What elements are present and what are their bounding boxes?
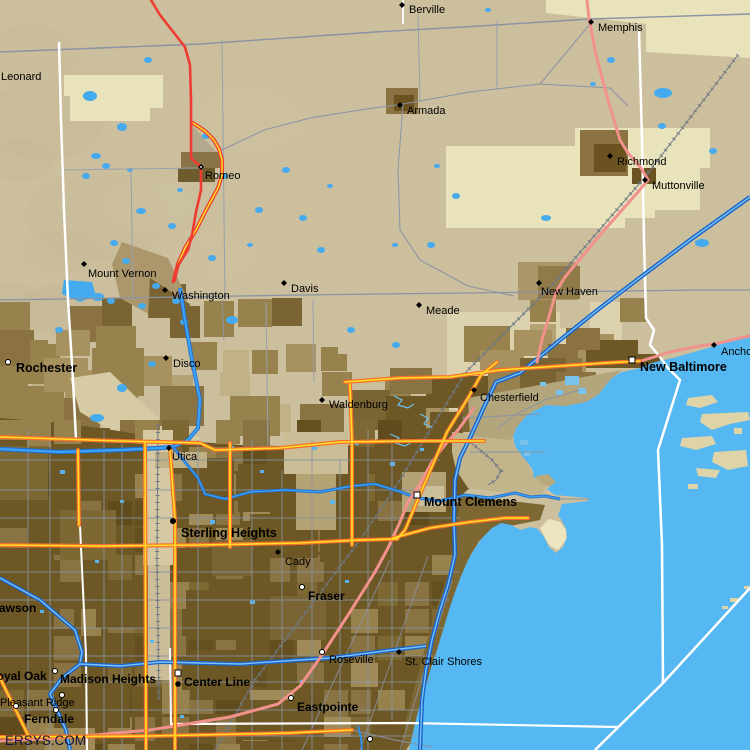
svg-text:Utica: Utica <box>172 451 198 463</box>
svg-text:Sterling Heights: Sterling Heights <box>181 526 277 540</box>
svg-text:Romeo: Romeo <box>205 170 240 182</box>
svg-text:Richmond: Richmond <box>617 156 667 168</box>
svg-text:Davis: Davis <box>291 283 319 295</box>
svg-text:Cady: Cady <box>285 556 311 568</box>
svg-text:Leonard: Leonard <box>1 71 41 83</box>
svg-text:Roseville: Roseville <box>329 654 374 666</box>
svg-text:Eastpointe: Eastpointe <box>297 700 359 714</box>
svg-text:Mount Clemens: Mount Clemens <box>424 495 517 509</box>
svg-text:Clawson: Clawson <box>0 601 36 615</box>
svg-text:Muttonville: Muttonville <box>652 180 705 192</box>
svg-text:Rochester: Rochester <box>16 361 77 375</box>
svg-text:New Haven: New Haven <box>541 286 598 298</box>
svg-text:Disco: Disco <box>173 358 201 370</box>
svg-text:Berville: Berville <box>409 4 445 16</box>
svg-text:Washington: Washington <box>172 290 230 302</box>
svg-text:Meade: Meade <box>426 305 460 317</box>
svg-text:New Baltimore: New Baltimore <box>640 360 727 374</box>
svg-text:Mount Vernon: Mount Vernon <box>88 268 157 280</box>
svg-text:ERSYS.COM: ERSYS.COM <box>5 733 86 748</box>
svg-text:Memphis: Memphis <box>598 22 643 34</box>
svg-text:Royal Oak: Royal Oak <box>0 669 47 683</box>
svg-text:Waldenburg: Waldenburg <box>329 399 388 411</box>
svg-text:Ferndale: Ferndale <box>24 712 74 726</box>
svg-text:Fraser: Fraser <box>308 589 345 603</box>
svg-text:Armada: Armada <box>407 105 446 117</box>
svg-text:Center Line: Center Line <box>184 675 250 689</box>
svg-text:Anchorville: Anchorville <box>721 346 750 358</box>
svg-text:Pleasant Ridge: Pleasant Ridge <box>0 697 75 709</box>
svg-text:St. Clair Shores: St. Clair Shores <box>405 656 483 668</box>
svg-text:Chesterfield: Chesterfield <box>480 392 539 404</box>
svg-text:Madison Heights: Madison Heights <box>60 672 156 686</box>
